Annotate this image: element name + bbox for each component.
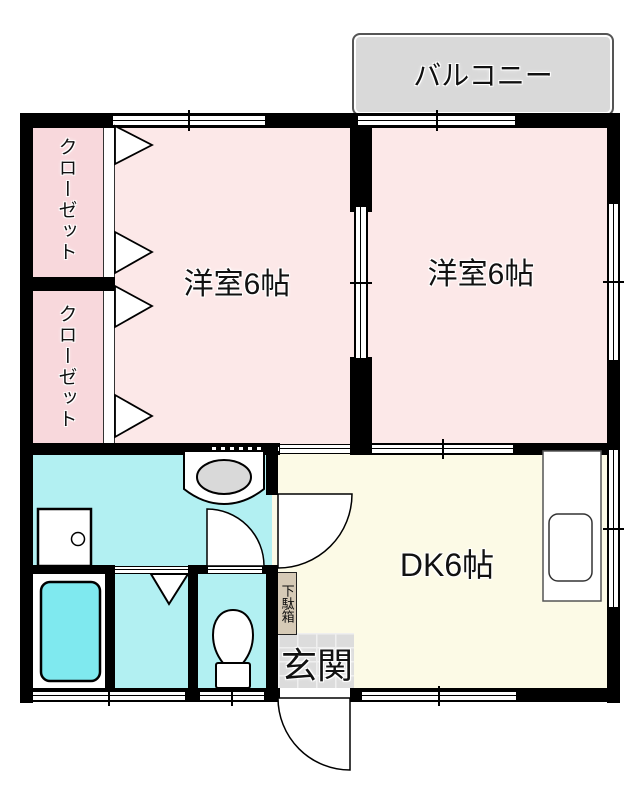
sliding-door-bedroom-right-dk bbox=[372, 443, 513, 455]
shower-area bbox=[111, 570, 194, 695]
window-bedroom-right bbox=[607, 204, 620, 360]
opening-bedroom-left-dk bbox=[280, 444, 350, 454]
wall-left bbox=[20, 113, 33, 703]
shoe-cabinet: 下駄箱 bbox=[276, 572, 297, 635]
window-bedroom-left-top bbox=[113, 114, 265, 127]
wall-partition-upper bbox=[350, 113, 372, 212]
washroom-area bbox=[26, 450, 272, 572]
closet-top-label: クローゼット bbox=[53, 137, 80, 263]
opening-washroom-shower bbox=[115, 566, 188, 574]
bedroom-left-label: 洋室6帖 bbox=[184, 259, 291, 303]
toilet-room bbox=[194, 570, 272, 695]
entrance-label: 玄関 bbox=[281, 637, 353, 689]
wall-partition-lower bbox=[350, 357, 372, 455]
shoe-cabinet-label: 下駄箱 bbox=[279, 584, 293, 623]
balcony-label: バルコニー bbox=[413, 54, 552, 94]
window-bathroom-bottom bbox=[33, 690, 185, 702]
wall-washroom-dk-upper bbox=[266, 443, 278, 495]
window-dk-right bbox=[607, 450, 620, 607]
closet-bottom-label: クローゼット bbox=[53, 304, 80, 430]
floor-plan: 下駄箱 bbox=[0, 0, 639, 806]
window-toilet-bottom bbox=[200, 690, 264, 702]
wall-mid-left bbox=[20, 443, 212, 455]
bathroom-area bbox=[26, 570, 111, 695]
doorway-washroom-toilet bbox=[208, 566, 262, 574]
balcony-sliding-door bbox=[358, 114, 515, 127]
entrance-door-icon bbox=[278, 698, 350, 770]
bedroom-right-label: 洋室6帖 bbox=[428, 249, 535, 293]
wall-washroom-dk-lower bbox=[266, 565, 278, 690]
window-dk-bottom bbox=[362, 690, 516, 702]
wall-mid-right bbox=[513, 443, 607, 455]
entrance-door-gap bbox=[280, 688, 350, 702]
wall-shower-toilet bbox=[188, 570, 198, 690]
wall-right bbox=[607, 113, 620, 703]
wall-bath-shower bbox=[105, 570, 115, 690]
wall-sanitary-a bbox=[26, 565, 115, 574]
wall-sanitary-c bbox=[262, 565, 278, 574]
wall-closet-divider bbox=[20, 277, 115, 291]
partition-sliding-door bbox=[354, 207, 368, 358]
wall-top bbox=[20, 113, 620, 128]
dk-label: DK6帖 bbox=[400, 540, 494, 586]
